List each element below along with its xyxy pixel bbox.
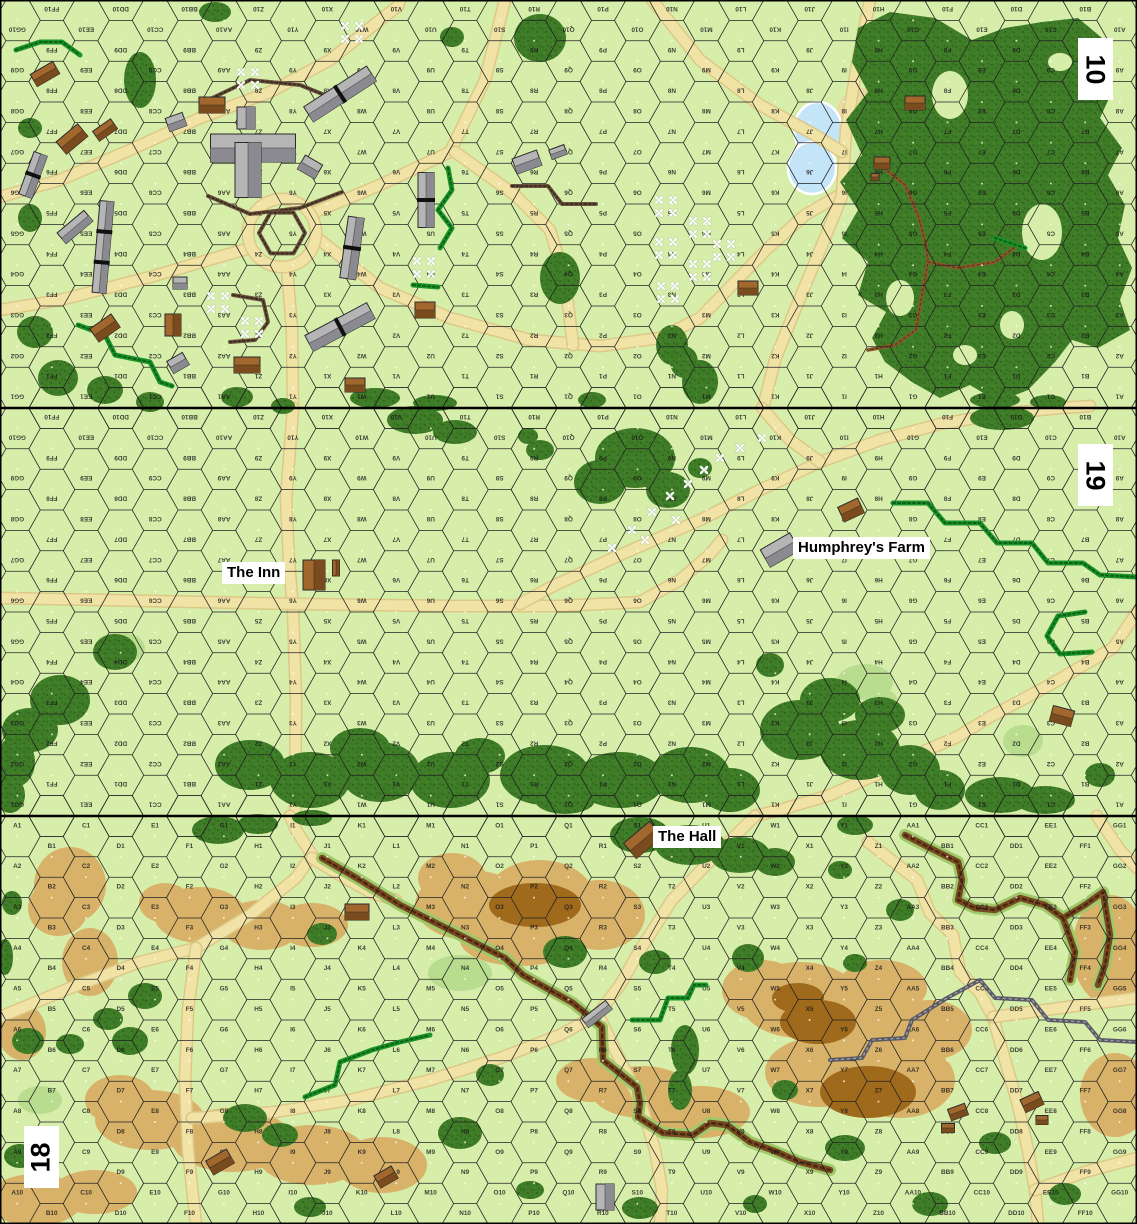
svg-text:B3: B3 — [1081, 699, 1090, 706]
svg-text:E4: E4 — [978, 270, 986, 277]
svg-text:K10: K10 — [356, 1190, 368, 1197]
svg-text:AA5: AA5 — [907, 986, 920, 993]
svg-text:X3: X3 — [323, 291, 331, 298]
svg-text:X5: X5 — [323, 209, 331, 216]
brown-building — [1036, 1116, 1048, 1125]
svg-text:T4: T4 — [461, 250, 469, 257]
svg-text:CC2: CC2 — [148, 760, 161, 767]
svg-text:B3: B3 — [1081, 291, 1090, 298]
svg-text:CC5: CC5 — [148, 637, 161, 644]
svg-text:F8: F8 — [186, 1128, 194, 1135]
svg-text:R8: R8 — [599, 1128, 608, 1135]
svg-text:CC9: CC9 — [975, 1149, 988, 1156]
svg-text:E10: E10 — [976, 25, 988, 32]
svg-text:B10: B10 — [1079, 413, 1091, 420]
svg-text:FF6: FF6 — [46, 168, 58, 175]
svg-text:O4: O4 — [633, 270, 642, 277]
svg-text:J10: J10 — [804, 413, 815, 420]
svg-text:L1: L1 — [737, 372, 745, 379]
svg-text:D5: D5 — [1012, 617, 1021, 624]
svg-text:X10: X10 — [321, 5, 333, 12]
svg-text:EE7: EE7 — [1045, 1067, 1058, 1074]
svg-text:K2: K2 — [771, 760, 780, 767]
svg-text:C6: C6 — [1046, 189, 1055, 196]
brown-building — [234, 357, 260, 373]
svg-text:A6: A6 — [13, 1026, 22, 1033]
svg-text:X7: X7 — [806, 1088, 814, 1095]
svg-text:Y5: Y5 — [289, 637, 297, 644]
svg-text:E7: E7 — [151, 1067, 159, 1074]
svg-text:Y5: Y5 — [840, 986, 848, 993]
svg-text:S3: S3 — [495, 311, 503, 318]
svg-text:A8: A8 — [1115, 515, 1124, 522]
svg-text:CC4: CC4 — [148, 270, 161, 277]
svg-text:J10: J10 — [322, 1210, 333, 1217]
svg-text:S2: S2 — [495, 352, 503, 359]
svg-text:T4: T4 — [461, 658, 469, 665]
svg-text:G6: G6 — [908, 597, 917, 604]
svg-text:U9: U9 — [426, 474, 435, 481]
svg-text:M10: M10 — [424, 1190, 437, 1197]
svg-text:Q3: Q3 — [564, 904, 573, 911]
svg-text:GG9: GG9 — [10, 66, 24, 73]
svg-text:CC6: CC6 — [148, 597, 161, 604]
svg-text:W4: W4 — [357, 270, 367, 277]
svg-text:A6: A6 — [1115, 597, 1124, 604]
svg-text:R10: R10 — [528, 5, 540, 12]
svg-text:I3: I3 — [290, 904, 296, 911]
svg-text:S4: S4 — [495, 678, 503, 685]
svg-text:C1: C1 — [1046, 393, 1055, 400]
svg-text:P2: P2 — [599, 331, 607, 338]
svg-text:T8: T8 — [668, 1128, 676, 1135]
svg-text:Y7: Y7 — [289, 556, 297, 563]
svg-text:Z9: Z9 — [254, 454, 262, 461]
svg-text:B5: B5 — [48, 1006, 57, 1013]
svg-text:BB8: BB8 — [183, 87, 196, 94]
svg-text:B1: B1 — [1081, 780, 1090, 787]
svg-text:H5: H5 — [254, 1006, 263, 1013]
svg-text:X2: X2 — [806, 884, 814, 891]
svg-text:GG9: GG9 — [10, 474, 24, 481]
svg-text:R8: R8 — [530, 87, 539, 94]
svg-text:W2: W2 — [770, 863, 780, 870]
svg-text:BB7: BB7 — [183, 127, 196, 134]
svg-text:B7: B7 — [1081, 127, 1090, 134]
svg-text:W6: W6 — [770, 1026, 780, 1033]
svg-text:D10: D10 — [1010, 413, 1022, 420]
svg-text:U7: U7 — [702, 1067, 711, 1074]
svg-text:Q6: Q6 — [564, 189, 573, 196]
svg-text:R5: R5 — [530, 209, 539, 216]
svg-text:K6: K6 — [771, 597, 780, 604]
svg-text:DD5: DD5 — [1010, 1006, 1023, 1013]
svg-text:FF6: FF6 — [1079, 1047, 1091, 1054]
svg-text:X2: X2 — [323, 739, 331, 746]
svg-text:Y3: Y3 — [289, 311, 297, 318]
svg-text:G3: G3 — [908, 311, 917, 318]
svg-text:K6: K6 — [358, 1026, 367, 1033]
svg-text:C2: C2 — [1046, 352, 1055, 359]
svg-text:H10: H10 — [872, 5, 884, 12]
svg-text:EE3: EE3 — [1045, 904, 1058, 911]
svg-text:BB6: BB6 — [183, 168, 196, 175]
svg-text:L2: L2 — [392, 884, 400, 891]
svg-text:J3: J3 — [806, 291, 814, 298]
svg-text:Z2: Z2 — [254, 739, 262, 746]
svg-text:T7: T7 — [461, 127, 469, 134]
svg-text:EE7: EE7 — [80, 556, 93, 563]
svg-text:J2: J2 — [806, 739, 814, 746]
svg-text:E8: E8 — [151, 1108, 159, 1115]
svg-text:F5: F5 — [943, 617, 951, 624]
svg-text:U2: U2 — [426, 352, 435, 359]
svg-text:P5: P5 — [599, 617, 607, 624]
svg-text:U7: U7 — [426, 556, 435, 563]
svg-text:S9: S9 — [495, 474, 503, 481]
svg-text:S9: S9 — [633, 1149, 641, 1156]
svg-text:O1: O1 — [495, 822, 504, 829]
svg-text:G5: G5 — [220, 986, 229, 993]
svg-text:BB10: BB10 — [939, 1210, 956, 1217]
svg-text:M4: M4 — [426, 945, 435, 952]
svg-text:C1: C1 — [82, 822, 91, 829]
svg-text:Q2: Q2 — [564, 760, 573, 767]
svg-text:J1: J1 — [806, 372, 814, 379]
svg-text:D6: D6 — [1012, 576, 1021, 583]
svg-text:M3: M3 — [426, 904, 435, 911]
svg-text:H8: H8 — [874, 87, 883, 94]
svg-text:M3: M3 — [701, 311, 710, 318]
svg-text:FF4: FF4 — [46, 250, 58, 257]
svg-text:O8: O8 — [495, 1108, 504, 1115]
svg-text:U6: U6 — [702, 1026, 711, 1033]
svg-text:C7: C7 — [82, 1067, 91, 1074]
svg-text:A7: A7 — [1115, 148, 1124, 155]
svg-text:P5: P5 — [599, 209, 607, 216]
svg-text:O9: O9 — [633, 66, 642, 73]
svg-text:DD6: DD6 — [114, 168, 127, 175]
svg-text:BB3: BB3 — [941, 924, 954, 931]
svg-text:M7: M7 — [701, 556, 710, 563]
svg-text:A9: A9 — [13, 1149, 22, 1156]
svg-text:G5: G5 — [908, 229, 917, 236]
svg-text:V7: V7 — [392, 535, 400, 542]
svg-text:T8: T8 — [461, 495, 469, 502]
svg-text:X5: X5 — [806, 1006, 814, 1013]
svg-text:FF9: FF9 — [46, 454, 58, 461]
svg-text:R1: R1 — [599, 843, 608, 850]
svg-text:L3: L3 — [737, 699, 745, 706]
svg-text:Q8: Q8 — [564, 107, 573, 114]
svg-text:Z7: Z7 — [254, 535, 262, 542]
svg-text:T8: T8 — [461, 87, 469, 94]
svg-text:E3: E3 — [978, 311, 986, 318]
svg-text:L10: L10 — [735, 5, 746, 12]
svg-text:DD8: DD8 — [1010, 1128, 1023, 1135]
svg-text:GG7: GG7 — [10, 148, 24, 155]
svg-text:E3: E3 — [151, 904, 159, 911]
svg-text:O6: O6 — [495, 1026, 504, 1033]
svg-text:S1: S1 — [633, 822, 641, 829]
svg-text:DD5: DD5 — [114, 209, 127, 216]
svg-text:Q9: Q9 — [564, 474, 573, 481]
svg-text:P1: P1 — [599, 372, 607, 379]
svg-text:N6: N6 — [461, 1047, 470, 1054]
svg-text:U1: U1 — [426, 801, 435, 808]
svg-text:R6: R6 — [599, 1047, 608, 1054]
svg-text:G2: G2 — [908, 352, 917, 359]
svg-text:B2: B2 — [1081, 331, 1090, 338]
svg-text:Q1: Q1 — [564, 393, 573, 400]
svg-text:H2: H2 — [874, 331, 883, 338]
svg-text:AA8: AA8 — [217, 515, 230, 522]
svg-text:O7: O7 — [633, 148, 642, 155]
svg-text:B6: B6 — [1081, 168, 1090, 175]
brown-building — [199, 97, 225, 113]
svg-text:O2: O2 — [633, 352, 642, 359]
svg-text:V6: V6 — [392, 168, 400, 175]
svg-text:X9: X9 — [323, 46, 331, 53]
svg-text:X10: X10 — [321, 413, 333, 420]
board-number-tab-18: 18 — [24, 1126, 59, 1188]
svg-text:P3: P3 — [530, 924, 538, 931]
svg-text:L9: L9 — [737, 454, 745, 461]
svg-text:T10: T10 — [459, 5, 470, 12]
svg-text:D6: D6 — [116, 1047, 125, 1054]
svg-text:J3: J3 — [324, 924, 332, 931]
svg-text:A3: A3 — [1115, 311, 1124, 318]
svg-text:L6: L6 — [737, 576, 745, 583]
svg-text:Z9: Z9 — [875, 1169, 883, 1176]
svg-text:Y7: Y7 — [840, 1067, 848, 1074]
svg-text:C7: C7 — [1046, 148, 1055, 155]
svg-text:M5: M5 — [701, 637, 710, 644]
svg-text:M10: M10 — [700, 433, 713, 440]
svg-text:FF8: FF8 — [46, 495, 58, 502]
svg-text:G4: G4 — [908, 270, 917, 277]
svg-text:I10: I10 — [288, 1190, 297, 1197]
svg-text:S7: S7 — [495, 148, 503, 155]
svg-text:O5: O5 — [495, 986, 504, 993]
svg-text:N7: N7 — [461, 1088, 470, 1095]
svg-text:W9: W9 — [770, 1149, 780, 1156]
svg-text:CC3: CC3 — [975, 904, 988, 911]
svg-text:E4: E4 — [978, 678, 986, 685]
svg-text:K4: K4 — [358, 945, 367, 952]
svg-text:V2: V2 — [737, 884, 745, 891]
svg-text:R3: R3 — [530, 699, 539, 706]
svg-text:M8: M8 — [701, 515, 710, 522]
svg-text:Z3: Z3 — [254, 699, 262, 706]
svg-text:DD5: DD5 — [114, 617, 127, 624]
game-map[interactable]: A1A2A3A4A5A6A7A8A9A10B1B2B3B4B5B6B7B8B9B… — [0, 0, 1137, 1224]
svg-text:P4: P4 — [530, 965, 538, 972]
svg-text:S6: S6 — [495, 597, 503, 604]
svg-text:DD2: DD2 — [114, 739, 127, 746]
svg-text:CC1: CC1 — [148, 393, 161, 400]
svg-text:C4: C4 — [1046, 678, 1055, 685]
svg-text:O10: O10 — [631, 25, 644, 32]
svg-text:O2: O2 — [495, 863, 504, 870]
svg-text:I5: I5 — [841, 637, 847, 644]
svg-text:L6: L6 — [737, 168, 745, 175]
svg-text:J2: J2 — [324, 884, 332, 891]
svg-text:CC9: CC9 — [148, 66, 161, 73]
svg-text:M9: M9 — [701, 474, 710, 481]
svg-text:P7: P7 — [599, 535, 607, 542]
svg-text:GG7: GG7 — [1113, 1067, 1127, 1074]
svg-text:DD4: DD4 — [114, 658, 127, 665]
svg-text:R4: R4 — [530, 250, 539, 257]
svg-text:A3: A3 — [1115, 719, 1124, 726]
svg-text:S1: S1 — [495, 801, 503, 808]
svg-text:N8: N8 — [667, 87, 676, 94]
svg-text:P4: P4 — [599, 658, 607, 665]
svg-text:D5: D5 — [1012, 209, 1021, 216]
svg-text:Q2: Q2 — [564, 352, 573, 359]
svg-text:N1: N1 — [461, 843, 470, 850]
svg-text:P7: P7 — [599, 127, 607, 134]
brown-building — [415, 302, 435, 318]
svg-text:G10: G10 — [218, 1190, 231, 1197]
svg-text:E6: E6 — [151, 1026, 159, 1033]
svg-text:M6: M6 — [701, 597, 710, 604]
svg-text:EE5: EE5 — [1045, 986, 1058, 993]
svg-text:N2: N2 — [667, 739, 676, 746]
svg-text:W8: W8 — [357, 107, 367, 114]
svg-text:I3: I3 — [841, 719, 847, 726]
svg-text:I7: I7 — [290, 1067, 296, 1074]
svg-text:GG5: GG5 — [10, 637, 24, 644]
svg-text:GG8: GG8 — [10, 515, 24, 522]
svg-text:CC7: CC7 — [975, 1067, 988, 1074]
svg-text:F4: F4 — [943, 250, 951, 257]
svg-text:H9: H9 — [874, 46, 883, 53]
svg-text:I6: I6 — [290, 1026, 296, 1033]
svg-text:V3: V3 — [392, 291, 400, 298]
svg-text:AA10: AA10 — [215, 25, 232, 32]
map-label-the-hall: The Hall — [653, 826, 721, 848]
svg-text:T9: T9 — [668, 1169, 676, 1176]
svg-text:CC1: CC1 — [975, 822, 988, 829]
svg-text:CC3: CC3 — [148, 719, 161, 726]
svg-text:R1: R1 — [530, 372, 539, 379]
svg-text:CC7: CC7 — [148, 148, 161, 155]
svg-text:DD10: DD10 — [112, 5, 129, 12]
svg-text:Q4: Q4 — [564, 678, 573, 685]
svg-text:C6: C6 — [1046, 597, 1055, 604]
svg-text:F8: F8 — [943, 495, 951, 502]
svg-text:EE9: EE9 — [80, 474, 93, 481]
svg-text:DD10: DD10 — [112, 413, 129, 420]
svg-text:P7: P7 — [530, 1088, 538, 1095]
svg-text:K9: K9 — [771, 66, 780, 73]
svg-text:E6: E6 — [978, 189, 986, 196]
svg-text:Z10: Z10 — [873, 1210, 884, 1217]
svg-text:N10: N10 — [666, 413, 678, 420]
svg-text:P8: P8 — [530, 1128, 538, 1135]
svg-text:CC10: CC10 — [147, 433, 164, 440]
svg-text:W1: W1 — [357, 801, 367, 808]
svg-text:C5: C5 — [1046, 229, 1055, 236]
svg-text:T1: T1 — [461, 372, 469, 379]
svg-text:Y5: Y5 — [289, 229, 297, 236]
svg-text:M2: M2 — [426, 863, 435, 870]
svg-text:O3: O3 — [495, 904, 504, 911]
svg-text:M1: M1 — [426, 822, 435, 829]
svg-text:G1: G1 — [220, 822, 229, 829]
svg-text:F7: F7 — [943, 535, 951, 542]
svg-text:B2: B2 — [48, 884, 57, 891]
svg-text:O4: O4 — [495, 945, 504, 952]
svg-text:C9: C9 — [1046, 66, 1055, 73]
svg-text:DD8: DD8 — [114, 87, 127, 94]
gray-building — [417, 173, 435, 228]
svg-text:M1: M1 — [701, 393, 710, 400]
svg-text:DD7: DD7 — [114, 535, 127, 542]
svg-text:R3: R3 — [530, 291, 539, 298]
svg-text:A2: A2 — [1115, 352, 1124, 359]
svg-text:Y10: Y10 — [838, 1190, 850, 1197]
svg-text:I2: I2 — [290, 863, 296, 870]
svg-text:I8: I8 — [841, 107, 847, 114]
svg-text:T3: T3 — [668, 924, 676, 931]
svg-text:AA5: AA5 — [217, 229, 230, 236]
svg-text:S10: S10 — [494, 433, 506, 440]
svg-text:F3: F3 — [943, 291, 951, 298]
gray-building — [173, 277, 187, 289]
svg-text:Y8: Y8 — [840, 1108, 848, 1115]
svg-text:A1: A1 — [1115, 393, 1124, 400]
svg-text:F9: F9 — [943, 454, 951, 461]
svg-text:G7: G7 — [908, 148, 917, 155]
svg-text:C3: C3 — [1046, 311, 1055, 318]
svg-text:R9: R9 — [530, 454, 539, 461]
svg-text:D8: D8 — [1012, 495, 1021, 502]
svg-text:GG2: GG2 — [1113, 863, 1127, 870]
svg-text:FF4: FF4 — [46, 658, 58, 665]
svg-text:U8: U8 — [426, 515, 435, 522]
svg-text:FF8: FF8 — [46, 87, 58, 94]
svg-text:E7: E7 — [978, 556, 986, 563]
svg-text:I7: I7 — [841, 148, 847, 155]
svg-text:S5: S5 — [633, 986, 641, 993]
svg-text:I4: I4 — [841, 678, 847, 685]
svg-text:G10: G10 — [907, 433, 920, 440]
svg-text:U3: U3 — [702, 904, 711, 911]
svg-text:V10: V10 — [390, 5, 402, 12]
svg-text:X3: X3 — [806, 924, 814, 931]
svg-text:H8: H8 — [874, 495, 883, 502]
svg-text:CC4: CC4 — [975, 945, 988, 952]
svg-text:M10: M10 — [700, 25, 713, 32]
svg-text:R2: R2 — [530, 739, 539, 746]
svg-text:Q4: Q4 — [564, 945, 573, 952]
svg-text:G6: G6 — [220, 1026, 229, 1033]
svg-text:P3: P3 — [599, 699, 607, 706]
svg-text:D2: D2 — [116, 884, 125, 891]
svg-text:GG10: GG10 — [1111, 1190, 1128, 1197]
svg-text:G8: G8 — [908, 515, 917, 522]
svg-text:AA1: AA1 — [907, 822, 920, 829]
svg-text:FF5: FF5 — [1079, 1006, 1091, 1013]
svg-text:B4: B4 — [48, 965, 57, 972]
svg-text:FF10: FF10 — [1078, 1210, 1093, 1217]
svg-text:M7: M7 — [426, 1067, 435, 1074]
svg-text:U9: U9 — [702, 1149, 711, 1156]
svg-text:C2: C2 — [1046, 760, 1055, 767]
